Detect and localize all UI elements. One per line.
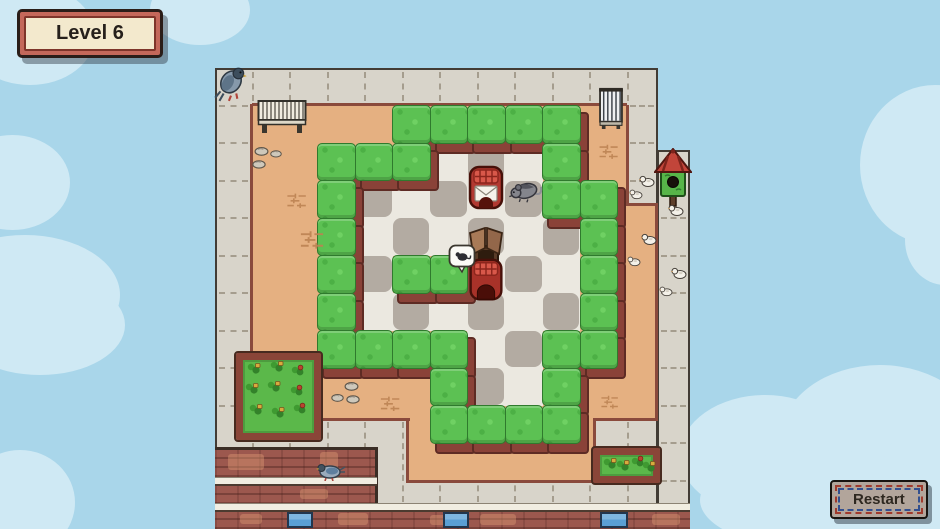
- sidewalk-tile-line: [289, 72, 291, 101]
- cloud: [0, 450, 75, 529]
- rock: [254, 143, 269, 153]
- mouse-thought-bubble: [448, 244, 476, 274]
- dove: [639, 174, 655, 188]
- floor-tile: [505, 218, 543, 256]
- sidewalk-tile-line: [589, 72, 591, 101]
- garden-plot: [236, 353, 321, 440]
- mailbox-envelope[interactable]: [467, 164, 505, 214]
- plant: [615, 459, 631, 472]
- rock: [252, 156, 266, 166]
- plant: [246, 362, 262, 375]
- building-edge: [215, 447, 378, 450]
- floor-tile-dark: [505, 256, 542, 293]
- birdhouse: [654, 148, 692, 208]
- rock: [346, 391, 360, 401]
- hedge-wall: [542, 143, 581, 182]
- sidewalk-tile-line: [219, 142, 248, 144]
- pigeon: [214, 64, 248, 104]
- sidewalk-tile-line: [402, 422, 404, 502]
- hedge-wall: [392, 105, 431, 144]
- pigeon-on-ledge: [316, 461, 346, 481]
- hedge-wall: [355, 330, 394, 369]
- hedge-wall: [317, 255, 356, 294]
- sidewalk-tile-line: [439, 72, 441, 101]
- window: [287, 512, 313, 528]
- courtyard-edge-line: [593, 418, 657, 421]
- brick-marks: [598, 141, 620, 161]
- brick-patch: [240, 514, 262, 524]
- floor-tile: [542, 255, 580, 293]
- hedge-wall: [542, 105, 581, 144]
- plant: [290, 364, 306, 377]
- hedge-wall: [542, 180, 581, 219]
- brick-patch: [652, 514, 680, 525]
- hedge-wall: [542, 368, 581, 407]
- sidewalk-tile-line: [252, 72, 254, 101]
- game-scene: Level 6 Restart: [0, 0, 940, 529]
- brick-marks: [283, 192, 311, 208]
- plant: [266, 380, 282, 393]
- plant: [641, 460, 657, 473]
- hedge-wall: [580, 180, 619, 219]
- building-ledge: [215, 477, 377, 486]
- rock: [270, 146, 282, 157]
- courtyard-edge-line: [406, 420, 409, 483]
- building-ledge: [215, 503, 690, 512]
- sidewalk-tile-line: [661, 255, 686, 257]
- plant: [289, 384, 305, 397]
- cloud: [0, 135, 70, 230]
- floor-tile-dark: [543, 293, 580, 330]
- plant: [269, 360, 285, 373]
- rat-character[interactable]: [507, 173, 543, 208]
- sidewalk-tile-line: [327, 72, 329, 101]
- sidewalk-tile-line: [661, 442, 686, 444]
- window: [443, 512, 469, 528]
- hedge-wall: [392, 143, 431, 182]
- plant: [270, 406, 286, 419]
- sidewalk-tile-line: [661, 330, 686, 332]
- brick-patch: [228, 454, 264, 470]
- hedge-wall: [430, 368, 469, 407]
- hedge-wall: [317, 293, 356, 332]
- hedge-wall: [355, 143, 394, 182]
- sidewalk-tile-line: [661, 367, 686, 369]
- hedge-wall: [392, 330, 431, 369]
- dove: [641, 232, 657, 246]
- dove: [659, 284, 673, 296]
- sidewalk-tile-line: [219, 255, 248, 257]
- scene-layers: [0, 0, 940, 529]
- sidewalk-tile-line: [219, 180, 248, 182]
- brick-patch: [300, 489, 328, 499]
- hedge-wall: [430, 405, 469, 444]
- hedge-wall: [317, 180, 356, 219]
- brick-marks: [600, 391, 620, 412]
- level-badge-label: Level 6: [24, 16, 156, 51]
- window: [600, 512, 628, 528]
- sidewalk-tile-line: [402, 72, 404, 101]
- bench-vertical: [597, 87, 625, 129]
- floor-tile-dark: [505, 331, 542, 368]
- hedge-wall: [430, 105, 469, 144]
- courtyard-edge-line: [408, 480, 595, 483]
- sidewalk-tile-line: [552, 72, 554, 101]
- hedge-wall: [580, 330, 619, 369]
- hedge-wall: [505, 405, 544, 444]
- hedge-wall: [542, 405, 581, 444]
- sidewalk-tile-line: [661, 480, 686, 482]
- sidewalk-tile-line: [364, 72, 366, 101]
- sidewalk-tile-line: [630, 142, 654, 144]
- hedge-wall: [542, 330, 581, 369]
- hedge-wall: [580, 255, 619, 294]
- hedge-wall: [317, 143, 356, 182]
- plant: [292, 402, 308, 415]
- sidewalk-tile-line: [630, 105, 654, 107]
- restart-button[interactable]: Restart: [830, 480, 928, 519]
- cloud: [150, 0, 250, 45]
- sidewalk-tile-line: [661, 217, 686, 219]
- hedge-wall: [467, 105, 506, 144]
- sidewalk-tile-line: [627, 72, 629, 101]
- garden-box-small: [593, 448, 660, 483]
- brick-marks: [299, 229, 326, 249]
- plant: [248, 403, 264, 416]
- brick-marks: [377, 395, 404, 411]
- sidewalk-tile-line: [661, 405, 686, 407]
- sidewalk-tile-line: [219, 217, 248, 219]
- hedge-wall: [505, 105, 544, 144]
- sidewalk-tile-line: [219, 105, 248, 107]
- sidewalk-tile-line: [477, 72, 479, 101]
- dove: [671, 266, 687, 280]
- rock: [344, 378, 359, 388]
- hedge-wall: [580, 218, 619, 257]
- hedge-wall: [580, 293, 619, 332]
- sidewalk-tile-line: [219, 330, 248, 332]
- floor-tile: [505, 293, 543, 331]
- brick-patch: [480, 514, 516, 525]
- bench-horizontal: [257, 99, 307, 135]
- dove: [627, 254, 641, 266]
- dove: [629, 187, 643, 199]
- restart-label: Restart: [835, 485, 923, 514]
- sidewalk-tile-line: [219, 292, 248, 294]
- hedge-wall: [430, 330, 469, 369]
- hedge-wall: [317, 330, 356, 369]
- floor-tile-dark: [393, 218, 430, 255]
- rock: [331, 389, 344, 398]
- dove: [668, 203, 684, 217]
- brick-patch: [338, 513, 368, 525]
- sidewalk-tile-line: [514, 72, 516, 101]
- hedge-wall: [467, 405, 506, 444]
- hedge-wall: [392, 255, 431, 294]
- level-badge: Level 6: [17, 9, 163, 58]
- plant: [244, 382, 260, 395]
- floor-tile: [505, 368, 543, 406]
